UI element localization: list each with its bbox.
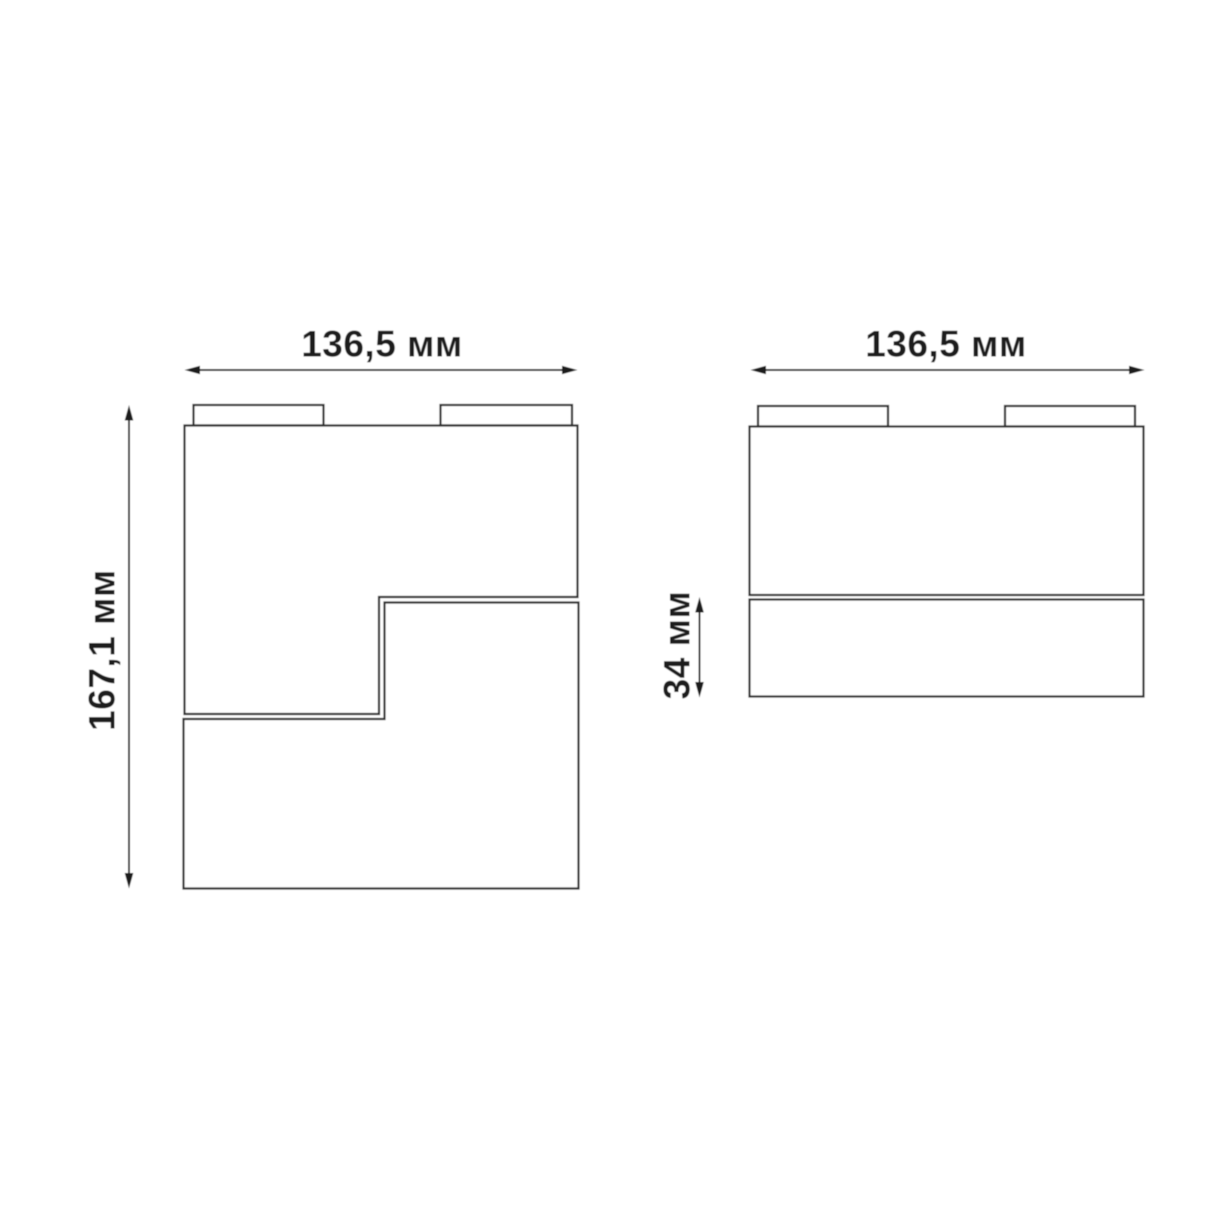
- svg-text:167,1 мм: 167,1 мм: [82, 569, 123, 731]
- svg-text:136,5 мм: 136,5 мм: [865, 324, 1027, 365]
- svg-text:34 мм: 34 мм: [657, 591, 698, 700]
- svg-text:136,5 мм: 136,5 мм: [301, 324, 463, 365]
